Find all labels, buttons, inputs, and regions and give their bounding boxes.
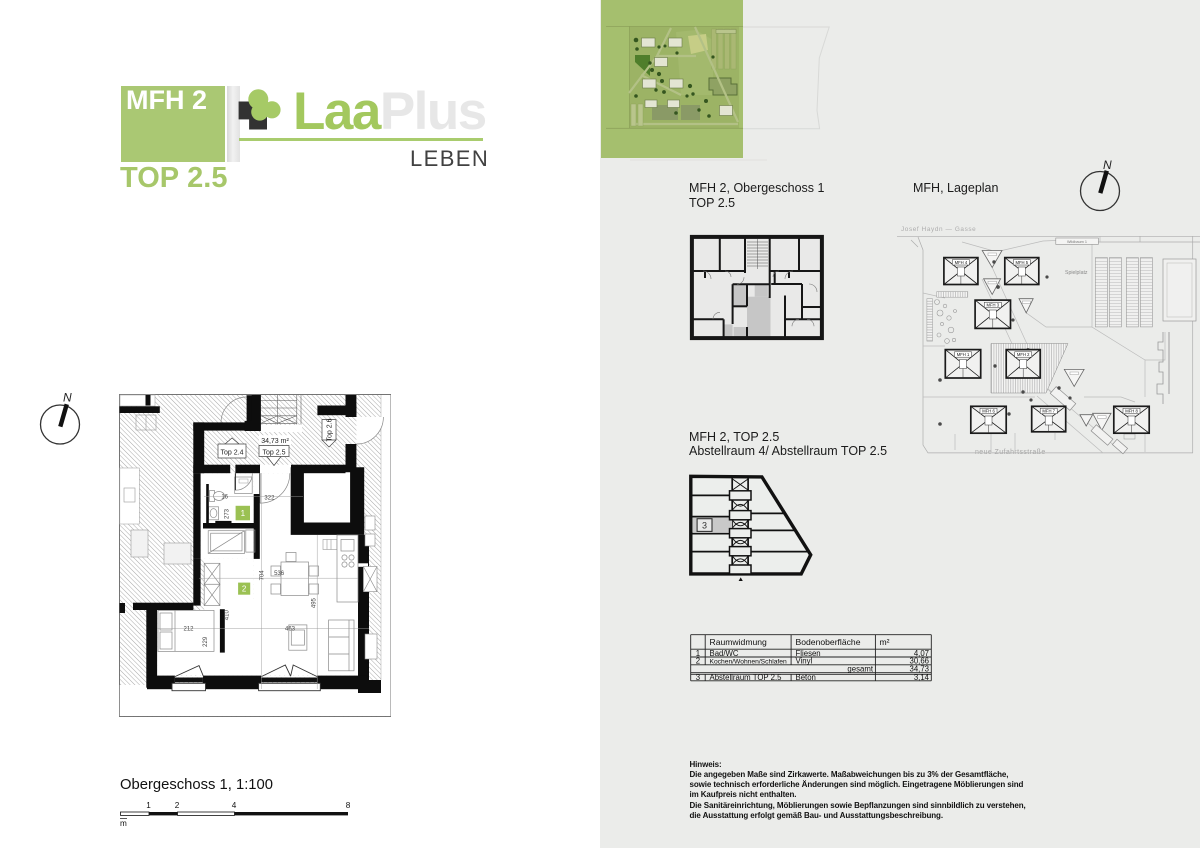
svg-text:Bad/WC: Bad/WC <box>710 649 739 658</box>
svg-text:gesamt: gesamt <box>847 664 873 673</box>
svg-text:3: 3 <box>702 521 707 531</box>
svg-text:34,73 m²: 34,73 m² <box>261 438 289 445</box>
svg-text:N: N <box>63 391 72 405</box>
svg-text:4: 4 <box>232 801 237 810</box>
svg-text:m: m <box>120 819 127 828</box>
svg-text:410: 410 <box>225 610 231 621</box>
svg-text:704: 704 <box>260 570 266 581</box>
svg-text:16: 16 <box>221 495 228 501</box>
svg-text:463: 463 <box>285 627 296 633</box>
svg-text:536: 536 <box>274 571 285 577</box>
svg-text:m²: m² <box>880 637 890 647</box>
svg-text:Abstellraum TOP 2.5: Abstellraum TOP 2.5 <box>710 673 783 682</box>
svg-text:Bodenoberfläche: Bodenoberfläche <box>796 637 861 647</box>
svg-text:2: 2 <box>696 657 700 666</box>
svg-text:MFH 8: MFH 8 <box>1125 409 1138 414</box>
svg-text:273: 273 <box>224 508 230 519</box>
svg-text:MFH 4: MFH 4 <box>955 260 968 265</box>
svg-text:MFH 6: MFH 6 <box>982 409 995 414</box>
svg-text:1: 1 <box>241 509 246 518</box>
svg-text:8: 8 <box>346 801 351 810</box>
svg-text:495: 495 <box>312 597 318 608</box>
svg-text:MFH 3: MFH 3 <box>987 303 1000 308</box>
svg-text:3: 3 <box>696 673 700 682</box>
svg-text:MFH 1: MFH 1 <box>957 352 970 357</box>
svg-text:Top 2.4: Top 2.4 <box>221 449 244 456</box>
svg-text:Beton: Beton <box>796 673 816 682</box>
svg-text:322: 322 <box>264 496 275 502</box>
svg-text:Top 2.5: Top 2.5 <box>263 450 286 457</box>
svg-text:2: 2 <box>175 801 180 810</box>
svg-text:MFH 7: MFH 7 <box>1042 409 1055 414</box>
svg-text:Raumwidmung: Raumwidmung <box>710 637 768 647</box>
svg-text:2: 2 <box>242 585 247 594</box>
svg-text:3,14: 3,14 <box>914 673 930 682</box>
svg-text:Top 2.6: Top 2.6 <box>327 418 334 441</box>
svg-text:Vinyl: Vinyl <box>796 657 813 666</box>
svg-text:Kochen/Wohnen/Schlafen: Kochen/Wohnen/Schlafen <box>710 658 787 665</box>
svg-text:MFH 5: MFH 5 <box>1016 260 1029 265</box>
svg-text:212: 212 <box>183 627 194 633</box>
svg-text:229: 229 <box>203 636 209 647</box>
svg-text:1: 1 <box>146 801 151 810</box>
svg-text:MFH 2: MFH 2 <box>1017 352 1030 357</box>
